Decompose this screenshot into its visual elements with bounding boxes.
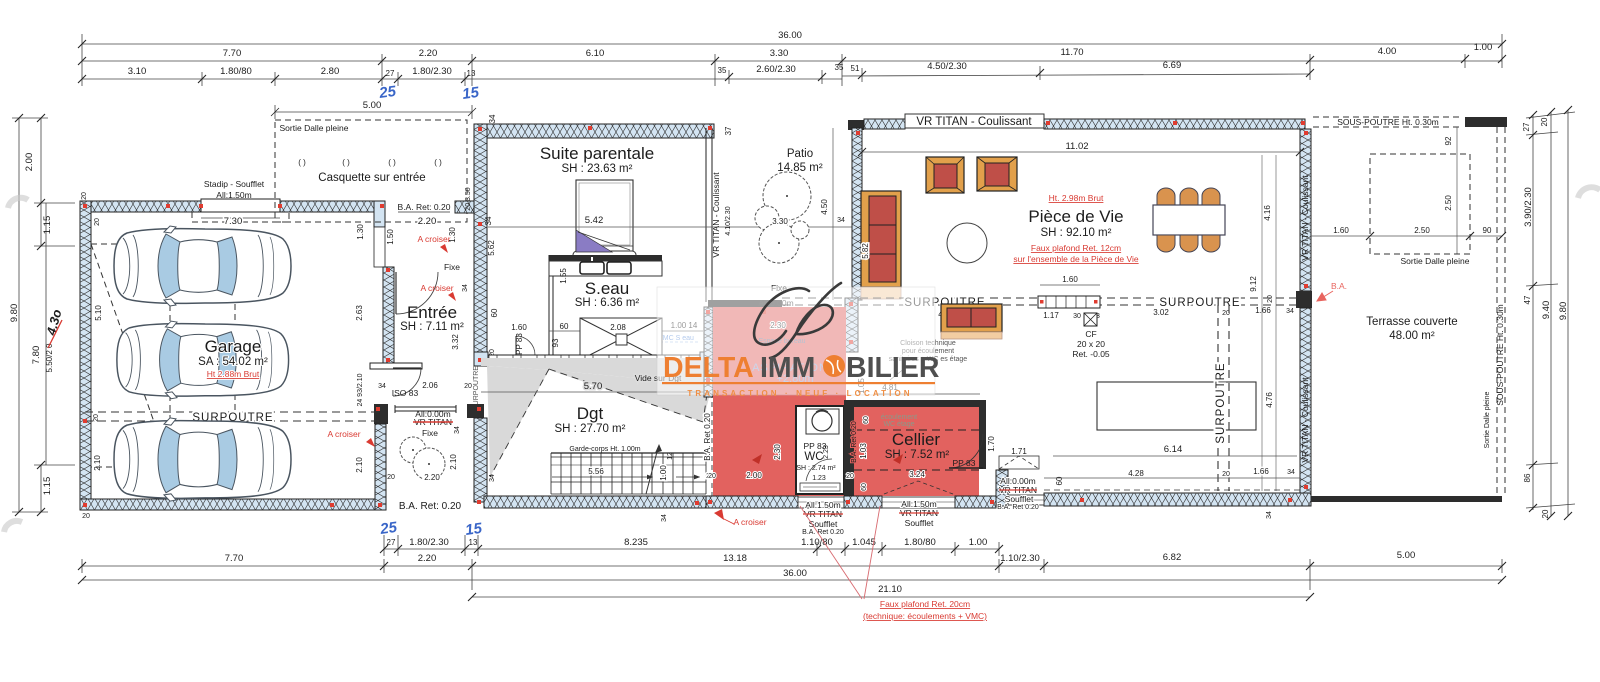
svg-text:5.50/2 0: 5.50/2 0	[45, 343, 54, 372]
svg-text:6.82: 6.82	[1163, 552, 1182, 563]
svg-text:15: 15	[461, 84, 481, 103]
svg-text:2.50: 2.50	[1414, 226, 1430, 235]
svg-text:7.80: 7.80	[31, 346, 42, 365]
svg-text:VR TITAN - Coulissant: VR TITAN - Coulissant	[1300, 175, 1310, 261]
svg-text:20: 20	[93, 414, 100, 422]
svg-text:3.02: 3.02	[1153, 308, 1169, 317]
svg-text:1.10/80: 1.10/80	[801, 537, 833, 548]
svg-text:( ): ( )	[342, 158, 350, 167]
svg-text:S.eau: S.eau	[585, 279, 629, 298]
svg-text:PP 83: PP 83	[952, 458, 975, 468]
svg-text:1.30: 1.30	[448, 227, 457, 243]
svg-text:36.00: 36.00	[778, 30, 802, 41]
svg-text:11.70: 11.70	[1060, 47, 1083, 58]
svg-text:3.90/2.30: 3.90/2.30	[1523, 187, 1534, 227]
svg-text:60: 60	[861, 483, 868, 491]
svg-text:1.50: 1.50	[386, 229, 395, 245]
svg-text:1.71: 1.71	[1011, 447, 1027, 456]
svg-text:7.30: 7.30	[224, 216, 243, 227]
svg-text:Terrasse couverte: Terrasse couverte	[1366, 316, 1457, 328]
svg-text:20: 20	[94, 218, 101, 226]
svg-text:20: 20	[708, 473, 716, 480]
svg-text:7.70: 7.70	[225, 553, 244, 564]
svg-text:A croiser: A croiser	[327, 429, 360, 439]
svg-text:4.10/2.30: 4.10/2.30	[725, 206, 732, 235]
svg-text:11.02: 11.02	[1065, 141, 1088, 152]
svg-text:36.00: 36.00	[783, 568, 807, 579]
svg-text:3.10: 3.10	[128, 66, 147, 77]
svg-text:60: 60	[490, 308, 499, 317]
svg-text:2.20: 2.20	[418, 216, 437, 227]
svg-text:Entrée: Entrée	[407, 303, 457, 322]
svg-text:Garage: Garage	[205, 337, 262, 356]
svg-text:2.10: 2.10	[93, 455, 102, 471]
svg-text:1.66: 1.66	[1255, 306, 1271, 315]
svg-text:B.A. Ret: 0.20: B.A. Ret: 0.20	[398, 202, 451, 212]
svg-text:SURPOUTRE: SURPOUTRE	[473, 366, 480, 410]
svg-text:5.10: 5.10	[94, 305, 103, 321]
svg-text:9.12: 9.12	[1249, 276, 1258, 292]
svg-text:SH : 7.11 m²: SH : 7.11 m²	[400, 321, 464, 333]
svg-text:20: 20	[1540, 117, 1549, 126]
svg-text:4.50/2.30: 4.50/2.30	[927, 61, 967, 72]
svg-text:Stadip - Soufflet: Stadip - Soufflet	[204, 179, 265, 189]
svg-text:Faux plafond Ret. 12cm: Faux plafond Ret. 12cm	[1031, 243, 1121, 253]
svg-text:1.80/2.30: 1.80/2.30	[412, 66, 452, 77]
svg-text:4.00: 4.00	[1378, 46, 1397, 57]
svg-text:Dgt: Dgt	[577, 404, 604, 423]
svg-text:2.10: 2.10	[355, 457, 364, 473]
svg-text:34: 34	[462, 284, 469, 292]
svg-text:27: 27	[1522, 122, 1531, 131]
svg-text:20: 20	[464, 383, 472, 390]
svg-text:34: 34	[489, 474, 496, 482]
svg-text:2.00: 2.00	[24, 153, 35, 172]
svg-text:5.82: 5.82	[861, 243, 870, 259]
svg-text:B.A. Ret 0.20: B.A. Ret 0.20	[851, 421, 858, 463]
svg-text:21.10: 21.10	[878, 584, 902, 595]
svg-text:1.03: 1.03	[859, 443, 868, 459]
svg-text:SH : 92.10 m²: SH : 92.10 m²	[1041, 227, 1112, 239]
svg-text:A croiser: A croiser	[733, 517, 766, 527]
svg-text:Faux plafond Ret. 20cm: Faux plafond Ret. 20cm	[880, 599, 970, 609]
svg-text:2.50: 2.50	[1444, 195, 1453, 211]
svg-text:B.A. Ret: 0.20: B.A. Ret: 0.20	[399, 501, 462, 512]
svg-text:5.70: 5.70	[584, 381, 603, 392]
svg-text:Cellier: Cellier	[892, 430, 941, 449]
svg-text:34: 34	[1266, 511, 1273, 519]
svg-text:1.80/2.30: 1.80/2.30	[409, 537, 449, 548]
svg-text:2.20: 2.20	[418, 553, 437, 564]
svg-text:Sortie Dalle pleine: Sortie Dalle pleine	[1401, 256, 1470, 266]
svg-text:DELTA: DELTA	[663, 352, 754, 384]
svg-text:SOUS-POUTRE Ht. 0.30m: SOUS-POUTRE Ht. 0.30m	[1337, 117, 1439, 127]
svg-text:4.16: 4.16	[1263, 205, 1272, 221]
svg-text:SH : 23.63 m²: SH : 23.63 m²	[562, 163, 633, 175]
svg-text:3.32: 3.32	[451, 334, 460, 350]
svg-text:1.15: 1.15	[42, 477, 53, 496]
svg-text:4.50: 4.50	[820, 199, 829, 215]
svg-text:1.60: 1.60	[1333, 226, 1349, 235]
svg-text:34: 34	[661, 514, 668, 522]
svg-text:9.40: 9.40	[1541, 301, 1552, 320]
svg-text:90: 90	[1483, 226, 1492, 235]
svg-text:SA : 54.02 m²: SA : 54.02 m²	[198, 356, 268, 368]
svg-text:Ret. -0.05: Ret. -0.05	[1072, 349, 1110, 359]
svg-text:SH : 2.74 m²: SH : 2.74 m²	[796, 465, 836, 472]
svg-text:2.23: 2.23	[823, 445, 830, 459]
svg-text:PP 83: PP 83	[515, 333, 524, 355]
svg-text:34: 34	[1287, 469, 1295, 476]
svg-text:35: 35	[835, 63, 844, 72]
svg-text:VR TITAN - Coulissant: VR TITAN - Coulissant	[1300, 377, 1310, 463]
svg-text:86: 86	[1523, 473, 1532, 482]
svg-text:37: 37	[724, 126, 733, 135]
svg-text:1.045: 1.045	[852, 537, 876, 548]
svg-text:20: 20	[82, 513, 90, 520]
svg-text:Ht. 2.98m Brut: Ht. 2.98m Brut	[1049, 193, 1104, 203]
svg-text:sur l'ensemble de la Pièce de: sur l'ensemble de la Pièce de Vie	[1013, 254, 1139, 264]
svg-text:5.00: 5.00	[1397, 550, 1416, 561]
svg-text:27: 27	[386, 69, 395, 78]
svg-text:1.60: 1.60	[1062, 275, 1078, 284]
svg-text:SURPOUTRE: SURPOUTRE	[1215, 362, 1227, 443]
svg-text:( ): ( )	[298, 158, 306, 167]
svg-text:2.10: 2.10	[449, 454, 458, 470]
svg-text:Soufflet: Soufflet	[1005, 494, 1034, 504]
svg-text:12: 12	[667, 452, 674, 460]
svg-text:3.24: 3.24	[909, 470, 925, 479]
svg-text:( ): ( )	[388, 158, 396, 167]
svg-text:2.08: 2.08	[610, 323, 626, 332]
svg-text:All:1.50m: All:1.50m	[216, 190, 251, 200]
svg-text:3.30: 3.30	[770, 48, 789, 59]
svg-text:1.80/80: 1.80/80	[904, 537, 936, 548]
svg-text:écoulement: écoulement	[881, 414, 917, 421]
svg-text:SURPOUTRE: SURPOUTRE	[1159, 297, 1240, 309]
svg-text:48.00 m²: 48.00 m²	[1389, 330, 1435, 342]
svg-text:60: 60	[560, 322, 569, 331]
svg-text:34: 34	[378, 383, 386, 390]
svg-text:92: 92	[1444, 136, 1453, 145]
svg-text:3.30: 3.30	[772, 217, 788, 226]
svg-text:(technique: écoulements + VMC): (technique: écoulements + VMC)	[863, 611, 987, 621]
svg-text:5.62: 5.62	[487, 240, 496, 256]
svg-text:9.80: 9.80	[9, 304, 20, 323]
svg-text:20 x 20: 20 x 20	[1077, 339, 1105, 349]
svg-text:Ht 2.88m Brut: Ht 2.88m Brut	[207, 369, 260, 379]
svg-text:34: 34	[1286, 308, 1294, 315]
svg-text:13: 13	[469, 538, 478, 547]
svg-text:4.28: 4.28	[1128, 469, 1144, 478]
svg-text:1.80/80: 1.80/80	[220, 66, 252, 77]
svg-text:5.56: 5.56	[588, 467, 604, 476]
svg-text:34: 34	[454, 426, 461, 434]
svg-text:1.23: 1.23	[812, 475, 826, 482]
svg-text:1.70: 1.70	[987, 436, 996, 452]
svg-text:20: 20	[1541, 509, 1550, 518]
svg-text:5.00: 5.00	[363, 100, 382, 111]
svg-text:ISO 83: ISO 83	[392, 388, 419, 398]
svg-text:1.10/2.30: 1.10/2.30	[1000, 553, 1040, 564]
svg-text:34: 34	[484, 216, 493, 225]
svg-text:5.42: 5.42	[585, 215, 604, 226]
svg-text:1.17: 1.17	[1043, 311, 1059, 320]
svg-text:1.00: 1.00	[969, 537, 988, 548]
svg-text:A croiser: A croiser	[420, 283, 453, 293]
svg-text:1.55: 1.55	[559, 268, 568, 284]
svg-text:30: 30	[1073, 313, 1081, 320]
svg-text:TRANSACTION · NEUF · LOCATION: TRANSACTION · NEUF · LOCATION	[687, 389, 912, 398]
svg-text:B.A.: B.A.	[1331, 281, 1347, 291]
svg-text:1.60: 1.60	[511, 323, 527, 332]
svg-text:2.06: 2.06	[422, 381, 438, 390]
svg-text:2.30: 2.30	[773, 444, 782, 460]
svg-text:WC étage: WC étage	[883, 421, 914, 428]
svg-text:SH : 27.70 m²: SH : 27.70 m²	[555, 423, 626, 435]
svg-text:Suite parentale: Suite parentale	[540, 144, 654, 163]
svg-text:15: 15	[464, 520, 484, 539]
svg-text:25: 25	[378, 519, 399, 538]
svg-text:9.80: 9.80	[1558, 302, 1569, 321]
svg-text:20: 20	[1267, 295, 1274, 303]
svg-text:47: 47	[1523, 295, 1532, 304]
svg-text:60: 60	[1055, 476, 1064, 485]
svg-text:8.235: 8.235	[624, 537, 648, 548]
svg-text:6.69: 6.69	[1163, 60, 1182, 71]
svg-text:27: 27	[387, 538, 396, 547]
svg-text:60: 60	[863, 416, 870, 424]
svg-text:( ): ( )	[434, 158, 442, 167]
svg-text:20: 20	[846, 473, 854, 480]
svg-text:1.30: 1.30	[356, 224, 365, 240]
svg-text:1.00: 1.00	[1474, 42, 1493, 53]
svg-text:Soufflet: Soufflet	[905, 518, 934, 528]
svg-text:VR TITAN - Coulissant: VR TITAN - Coulissant	[916, 116, 1032, 128]
svg-text:20: 20	[1222, 471, 1230, 478]
svg-text:BILIER: BILIER	[846, 352, 939, 384]
svg-text:SH : 6.36 m²: SH : 6.36 m²	[575, 297, 640, 309]
svg-text:2.80: 2.80	[321, 66, 340, 77]
svg-text:VR TITAN - Coulissant: VR TITAN - Coulissant	[711, 172, 721, 258]
svg-text:Patio: Patio	[787, 148, 813, 160]
svg-text:Fixe: Fixe	[444, 262, 460, 272]
svg-text:25: 25	[377, 83, 398, 102]
svg-text:6.14: 6.14	[1164, 444, 1183, 455]
svg-text:Sortie Dalle pleine: Sortie Dalle pleine	[1484, 391, 1491, 448]
svg-text:IMM: IMM	[760, 352, 815, 384]
svg-text:B.A. Ret 0.20: B.A. Ret 0.20	[802, 529, 844, 536]
svg-text:Pièce de Vie: Pièce de Vie	[1028, 207, 1123, 226]
svg-text:Garde-corps Ht. 1.00m: Garde-corps Ht. 1.00m	[569, 446, 640, 453]
svg-text:B.A. Ret 0.20: B.A. Ret 0.20	[703, 413, 712, 461]
svg-text:Casquette sur entrée: Casquette sur entrée	[318, 172, 425, 184]
svg-text:13.18: 13.18	[723, 553, 747, 564]
svg-text:Soufflet: Soufflet	[809, 519, 838, 529]
svg-text:2.20: 2.20	[424, 473, 440, 482]
svg-text:1.00: 1.00	[659, 465, 668, 481]
svg-text:4.76: 4.76	[1265, 392, 1274, 408]
svg-text:SOUS-POUTRE Ht. 0.30m: SOUS-POUTRE Ht. 0.30m	[1495, 304, 1505, 406]
svg-text:13: 13	[467, 69, 476, 78]
svg-text:1.15: 1.15	[42, 216, 53, 235]
svg-text:93: 93	[551, 338, 560, 347]
svg-text:CF: CF	[1085, 329, 1096, 339]
svg-text:34: 34	[488, 114, 497, 123]
svg-text:24 93/2.10: 24 93/2.10	[357, 373, 364, 406]
svg-text:7.70: 7.70	[223, 48, 242, 59]
svg-text:2.63: 2.63	[355, 305, 364, 321]
svg-text:6.10: 6.10	[586, 48, 605, 59]
svg-text:35: 35	[718, 66, 727, 75]
svg-text:20: 20	[81, 192, 88, 200]
svg-text:Fixe: Fixe	[422, 428, 438, 438]
svg-text:20: 20	[387, 474, 395, 481]
svg-text:20 3.50: 20 3.50	[465, 187, 472, 210]
svg-text:51: 51	[851, 64, 860, 73]
svg-text:34: 34	[837, 217, 845, 224]
svg-text:2.20: 2.20	[419, 48, 438, 59]
svg-text:A croiser: A croiser	[417, 234, 450, 244]
svg-text:1.66: 1.66	[1253, 467, 1269, 476]
svg-text:2.60/2.30: 2.60/2.30	[756, 64, 796, 75]
svg-text:B.A. Ret 0.20: B.A. Ret 0.20	[997, 504, 1039, 511]
svg-text:Sortie Dalle pleine: Sortie Dalle pleine	[280, 123, 349, 133]
svg-text:2.00: 2.00	[746, 471, 762, 480]
